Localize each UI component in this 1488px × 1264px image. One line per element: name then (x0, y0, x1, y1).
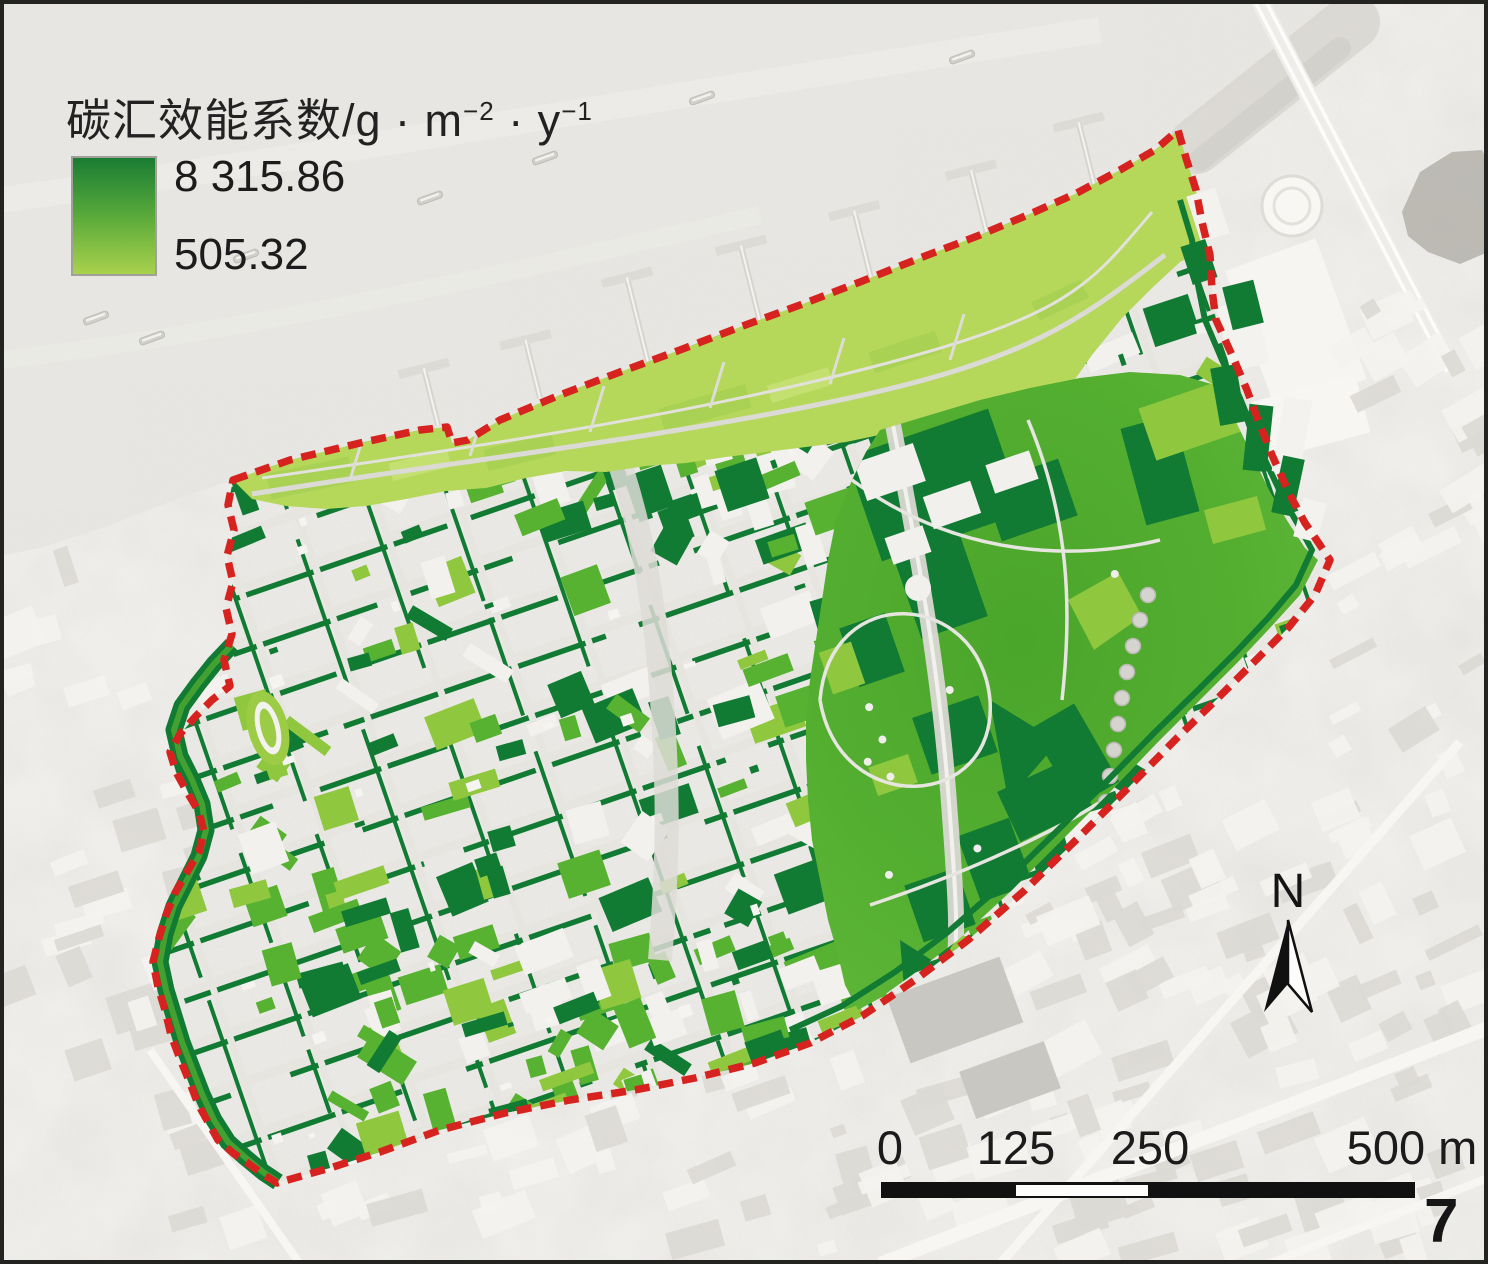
figure-map: 碳汇效能系数/g · m−2 · y−1 8 315.86 505.32 0 1… (0, 0, 1488, 1264)
map-canvas (0, 0, 1488, 1264)
